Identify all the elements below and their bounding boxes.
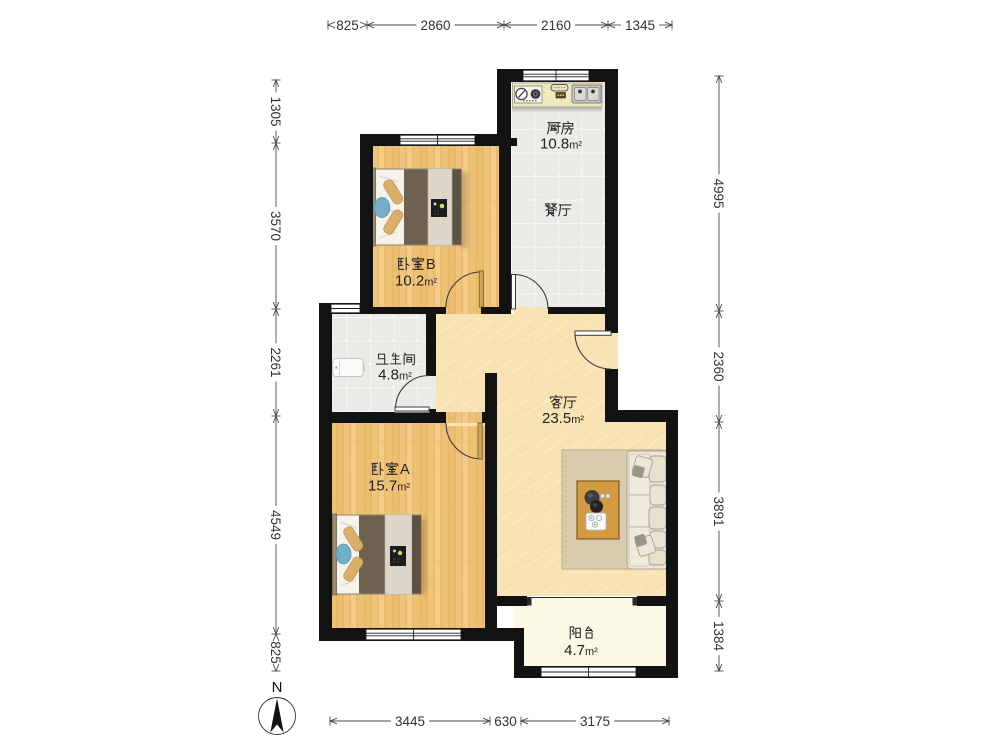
svg-text:825: 825 <box>268 641 283 664</box>
svg-text:2160: 2160 <box>541 18 571 33</box>
svg-text:2360: 2360 <box>711 351 726 381</box>
svg-text:4549: 4549 <box>268 510 283 540</box>
svg-text:3445: 3445 <box>395 714 425 729</box>
svg-text:N: N <box>272 679 283 696</box>
svg-text:630: 630 <box>494 714 517 729</box>
svg-text:2860: 2860 <box>420 18 450 33</box>
svg-text:2261: 2261 <box>268 347 283 377</box>
svg-text:825: 825 <box>336 18 359 33</box>
svg-text:1345: 1345 <box>625 18 655 33</box>
svg-text:3570: 3570 <box>268 211 283 241</box>
svg-text:4995: 4995 <box>711 178 726 208</box>
svg-text:B: B <box>426 257 436 273</box>
svg-text:A: A <box>400 462 410 478</box>
svg-text:1384: 1384 <box>711 621 726 652</box>
svg-text:1305: 1305 <box>268 96 283 126</box>
svg-text:3891: 3891 <box>711 496 726 526</box>
svg-text:3175: 3175 <box>580 714 610 729</box>
